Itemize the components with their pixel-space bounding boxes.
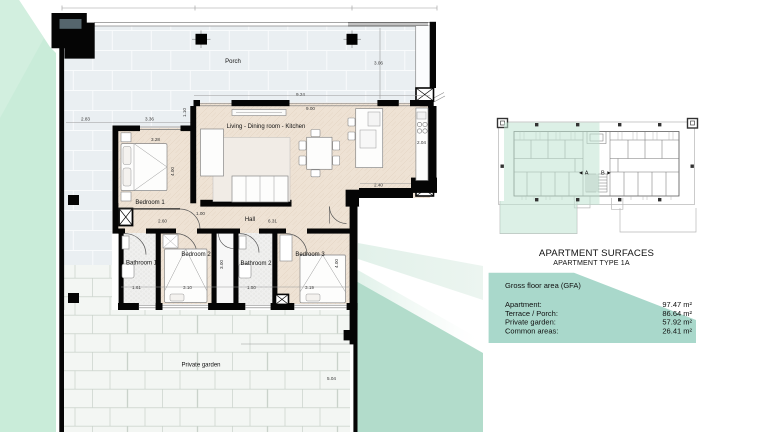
svg-text:3.06: 3.06 — [374, 61, 383, 66]
svg-text:APARTMENT TYPE 1A: APARTMENT TYPE 1A — [553, 259, 630, 267]
svg-text:3.36: 3.36 — [145, 117, 154, 122]
svg-text:4.00: 4.00 — [334, 259, 339, 268]
svg-text:Common areas:: Common areas: — [505, 326, 558, 335]
svg-text:3.28: 3.28 — [151, 137, 160, 142]
svg-text:86.64 m²: 86.64 m² — [662, 309, 692, 318]
svg-text:Porch: Porch — [225, 59, 241, 65]
svg-text:1.00: 1.00 — [196, 211, 205, 216]
svg-text:Bedroom 2: Bedroom 2 — [181, 252, 211, 258]
svg-text:Private garden: Private garden — [181, 363, 220, 369]
svg-text:9.00: 9.00 — [306, 106, 315, 111]
svg-text:97.47 m²: 97.47 m² — [662, 300, 692, 309]
svg-text:5.04: 5.04 — [327, 376, 336, 381]
svg-text:Bedroom 1: Bedroom 1 — [135, 200, 165, 206]
svg-text:1.50: 1.50 — [247, 285, 256, 290]
svg-text:Terrace / Porch:: Terrace / Porch: — [505, 309, 558, 318]
svg-text:Living - Dining room - Kitchen: Living - Dining room - Kitchen — [227, 124, 306, 130]
svg-text:3.10: 3.10 — [183, 285, 192, 290]
svg-text:Hall: Hall — [245, 217, 255, 223]
svg-text:3.19: 3.19 — [305, 285, 314, 290]
svg-text:2.83: 2.83 — [81, 117, 90, 122]
svg-text:1.10: 1.10 — [182, 108, 187, 117]
svg-text:Private garden:: Private garden: — [505, 318, 556, 327]
svg-text:APARTMENT SURFACES: APARTMENT SURFACES — [539, 248, 654, 259]
svg-text:Gross floor area (GFA): Gross floor area (GFA) — [505, 281, 581, 290]
svg-text:4.00: 4.00 — [170, 167, 175, 176]
svg-text:6.31: 6.31 — [268, 219, 277, 224]
svg-text:3.00: 3.00 — [219, 260, 224, 269]
svg-text:1.61: 1.61 — [132, 285, 141, 290]
svg-text:26.41 m²: 26.41 m² — [662, 326, 692, 335]
svg-text:57.92 m²: 57.92 m² — [662, 318, 692, 327]
svg-text:◄ A: ◄ A — [578, 171, 589, 177]
svg-text:Bathroom 2: Bathroom 2 — [240, 261, 272, 267]
svg-text:2.60: 2.60 — [158, 219, 167, 224]
svg-text:Bathroom 1: Bathroom 1 — [126, 261, 158, 267]
svg-text:9.24: 9.24 — [296, 92, 305, 97]
svg-text:B ►: B ► — [601, 171, 612, 177]
svg-text:2.04: 2.04 — [417, 140, 426, 145]
svg-text:Apartment:: Apartment: — [505, 300, 542, 309]
svg-text:Bedroom 3: Bedroom 3 — [295, 252, 325, 258]
